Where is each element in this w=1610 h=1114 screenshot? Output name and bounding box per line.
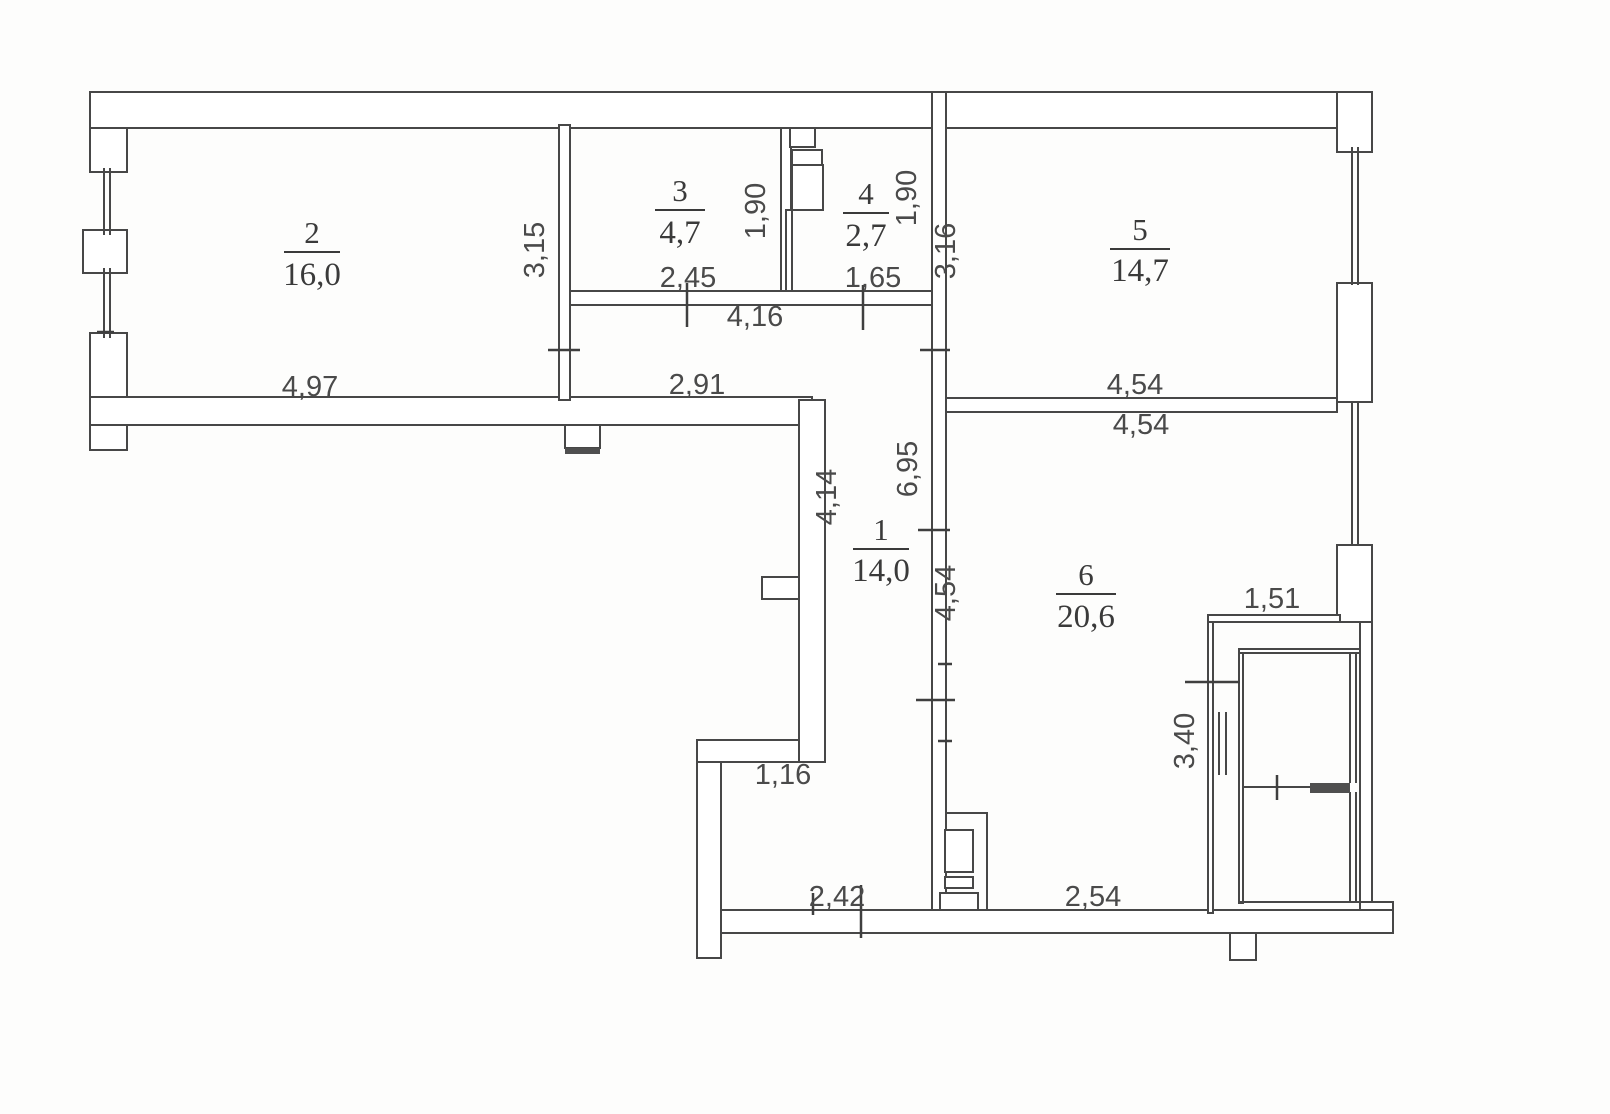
entry-door-sill	[565, 448, 600, 454]
vent-shaft-box-1	[790, 128, 815, 147]
wall-loggia-left	[1239, 649, 1243, 903]
dim-corridor-right-height: 6,95	[892, 441, 924, 497]
dim-room2-width: 4,97	[282, 371, 338, 403]
window-loggia-upper-icon	[1350, 653, 1356, 783]
room-2-label: 2 16,0	[283, 215, 341, 293]
entry-door-icon	[565, 425, 600, 448]
room-1-number: 1	[873, 512, 889, 547]
wall-vestibule-left	[697, 740, 721, 958]
dim-loggia-height: 3,40	[1169, 713, 1201, 769]
room-6-label: 6 20,6	[1056, 557, 1116, 635]
wall-left-pier-mid	[83, 230, 127, 273]
dim-room6-bottom-width: 2,54	[1065, 881, 1121, 913]
vent-shaft-box-2	[792, 150, 822, 165]
wall-bottom-left-band	[90, 397, 812, 425]
room-4-area: 2,7	[845, 218, 886, 254]
wall-loggia-top	[1239, 649, 1360, 653]
dim-entry-niche-width: 1,16	[755, 759, 811, 791]
room-1-label: 1 14,0	[852, 512, 910, 589]
dim-room2-height: 3,15	[519, 222, 551, 278]
dim-room3-width: 2,45	[660, 262, 716, 294]
wall-right-pier-mid	[1337, 283, 1372, 402]
dim-room6-top-width: 4,54	[1113, 409, 1169, 441]
outer-walls	[83, 92, 1393, 960]
dim-corridor-top-width: 4,16	[727, 301, 783, 333]
dim-room4-width: 1,65	[845, 262, 901, 294]
wall-niche-top	[1208, 615, 1340, 622]
room-2-number: 2	[304, 215, 320, 250]
wall-left-pier-top	[90, 128, 127, 172]
floor-plan-page: 1 14,0 2 16,0 3 4,7 4 2,7 5 14,7 6 20,6	[0, 0, 1610, 1114]
wall-top	[90, 92, 1372, 128]
room-4-number: 4	[858, 176, 874, 211]
room-6-number: 6	[1078, 557, 1094, 592]
wall-bottom-tab	[1230, 933, 1256, 960]
dim-room5-width: 4,54	[1107, 369, 1163, 401]
room-1-area: 14,0	[852, 553, 910, 589]
window-loggia-lower-icon	[1350, 792, 1356, 902]
dim-corridor-mid-width: 2,91	[669, 369, 725, 401]
dim-room3-height: 1,90	[740, 183, 772, 239]
plumbing-box-3	[940, 893, 978, 910]
wall-balcony-right	[1360, 622, 1372, 902]
wall-bottom-band	[697, 910, 1393, 933]
loggia-divider-solid	[1310, 783, 1350, 793]
room-3-area: 4,7	[659, 215, 700, 251]
window-room5-icon	[1352, 147, 1358, 285]
wall-left-pier-bottom	[90, 333, 127, 450]
room-6-area: 20,6	[1057, 599, 1115, 635]
room-5-label: 5 14,7	[1110, 212, 1170, 289]
wall-right-pier-top	[1337, 92, 1372, 152]
wall-right-pier-low	[1337, 545, 1372, 622]
plumbing-box-2	[945, 877, 973, 888]
dim-loggia-width: 1,51	[1244, 583, 1300, 615]
window-room2-lower-icon	[104, 268, 110, 338]
dim-room4-height: 1,90	[891, 170, 923, 226]
door-room6-loggia-icon	[1219, 712, 1226, 775]
plumbing-box-1	[945, 830, 973, 872]
window-room2-upper-icon	[104, 168, 110, 235]
wall-niche-left	[1208, 622, 1213, 913]
dim-room5-height: 3,16	[930, 223, 962, 279]
room-2-area: 16,0	[283, 257, 341, 293]
room-3-number: 3	[672, 173, 688, 208]
wall-corridor-pilaster	[762, 577, 799, 599]
room-5-area: 14,7	[1111, 253, 1169, 289]
wall-corridor-left	[799, 400, 825, 762]
window-room6-icon	[1352, 402, 1358, 545]
room-3-label: 3 4,7	[655, 173, 705, 251]
vent-shaft-box-3	[792, 165, 823, 210]
dim-entry-bottom-width: 2,42	[809, 881, 865, 913]
wall-room3-room4-low	[786, 210, 792, 291]
wall-central-vertical	[932, 92, 946, 910]
floor-plan-canvas: 1 14,0 2 16,0 3 4,7 4 2,7 5 14,7 6 20,6	[0, 0, 1610, 1114]
wall-room2-room3	[559, 125, 570, 400]
room-5-number: 5	[1132, 212, 1148, 247]
dim-room6-left-height: 4,54	[930, 565, 962, 621]
room-4-label: 4 2,7	[843, 176, 889, 254]
dim-corridor-left-height: 4,14	[811, 469, 843, 525]
